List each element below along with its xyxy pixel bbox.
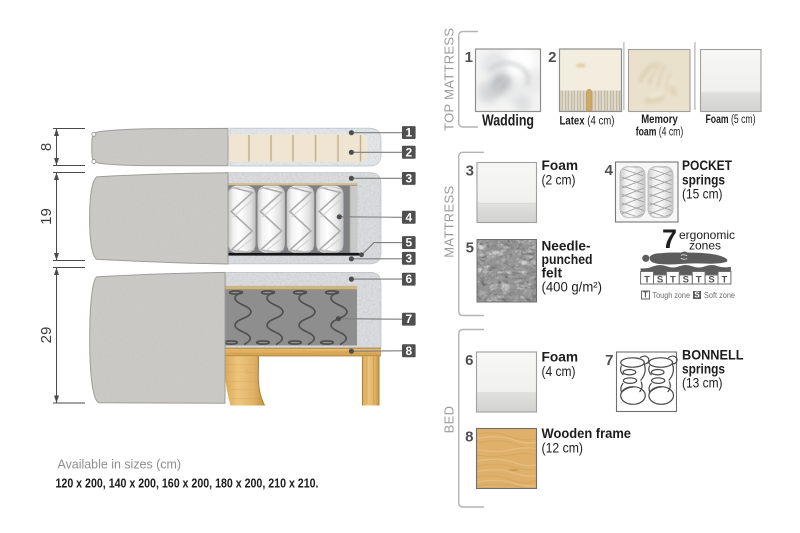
svg-text:Latex (4 cm): Latex (4 cm): [560, 114, 615, 128]
svg-text:BONNELL: BONNELL: [682, 348, 744, 363]
svg-text:Wadding: Wadding: [482, 113, 534, 130]
svg-text:3: 3: [466, 163, 474, 180]
svg-text:T: T: [644, 275, 650, 286]
svg-text:(4 cm): (4 cm): [542, 364, 576, 379]
svg-text:4: 4: [605, 162, 614, 179]
svg-text:felt: felt: [542, 266, 563, 281]
svg-text:MATTRESS: MATTRESS: [442, 186, 457, 258]
svg-text:T: T: [721, 275, 727, 286]
svg-text:Wooden frame: Wooden frame: [542, 426, 632, 441]
svg-text:8: 8: [465, 429, 473, 446]
svg-text:5: 5: [466, 240, 474, 257]
svg-text:(15 cm): (15 cm): [682, 187, 723, 202]
svg-text:7: 7: [605, 352, 613, 369]
svg-text:Foam: Foam: [542, 158, 579, 173]
svg-text:(2 cm): (2 cm): [542, 173, 576, 188]
svg-text:19: 19: [38, 208, 55, 225]
svg-text:1: 1: [465, 49, 473, 66]
svg-text:7: 7: [662, 224, 677, 254]
svg-text:POCKET: POCKET: [682, 158, 733, 173]
svg-text:foam (4 cm): foam (4 cm): [636, 125, 684, 139]
svg-text:2: 2: [406, 145, 413, 159]
svg-text:S: S: [683, 275, 689, 286]
svg-text:4: 4: [406, 210, 413, 224]
svg-text:7: 7: [406, 312, 413, 326]
svg-text:1: 1: [406, 126, 413, 140]
svg-text:8: 8: [38, 143, 55, 151]
svg-text:29: 29: [38, 327, 55, 344]
svg-text:(400 g/m²): (400 g/m²): [542, 280, 603, 295]
svg-text:(12 cm): (12 cm): [542, 441, 584, 456]
svg-text:S: S: [657, 275, 663, 286]
svg-text:S: S: [708, 275, 714, 286]
svg-text:Foam: Foam: [542, 350, 579, 365]
svg-text:120 x 200, 140 x 200, 160 x 20: 120 x 200, 140 x 200, 160 x 200, 180 x 2…: [56, 476, 319, 491]
svg-text:6: 6: [406, 272, 413, 286]
svg-text:springs: springs: [682, 173, 725, 188]
svg-text:Foam (5 cm): Foam (5 cm): [706, 112, 756, 126]
svg-text:T: T: [670, 275, 676, 286]
svg-text:Soft zone: Soft zone: [704, 290, 735, 300]
svg-text:TOP MATTRESS: TOP MATTRESS: [442, 28, 457, 131]
svg-text:(13 cm): (13 cm): [682, 376, 723, 391]
svg-text:springs: springs: [682, 362, 725, 377]
svg-text:zones: zones: [689, 239, 721, 253]
svg-text:5: 5: [406, 236, 413, 250]
svg-text:S: S: [694, 291, 700, 300]
svg-text:3: 3: [406, 172, 413, 186]
svg-text:8: 8: [406, 344, 413, 358]
svg-text:T: T: [696, 275, 702, 286]
svg-text:3: 3: [406, 251, 413, 265]
svg-text:Tough zone: Tough zone: [653, 290, 691, 300]
svg-text:Available in sizes (cm): Available in sizes (cm): [58, 457, 182, 472]
svg-text:2: 2: [548, 49, 556, 66]
svg-text:BED: BED: [442, 406, 457, 434]
svg-text:T: T: [643, 291, 648, 300]
svg-text:6: 6: [465, 352, 473, 369]
